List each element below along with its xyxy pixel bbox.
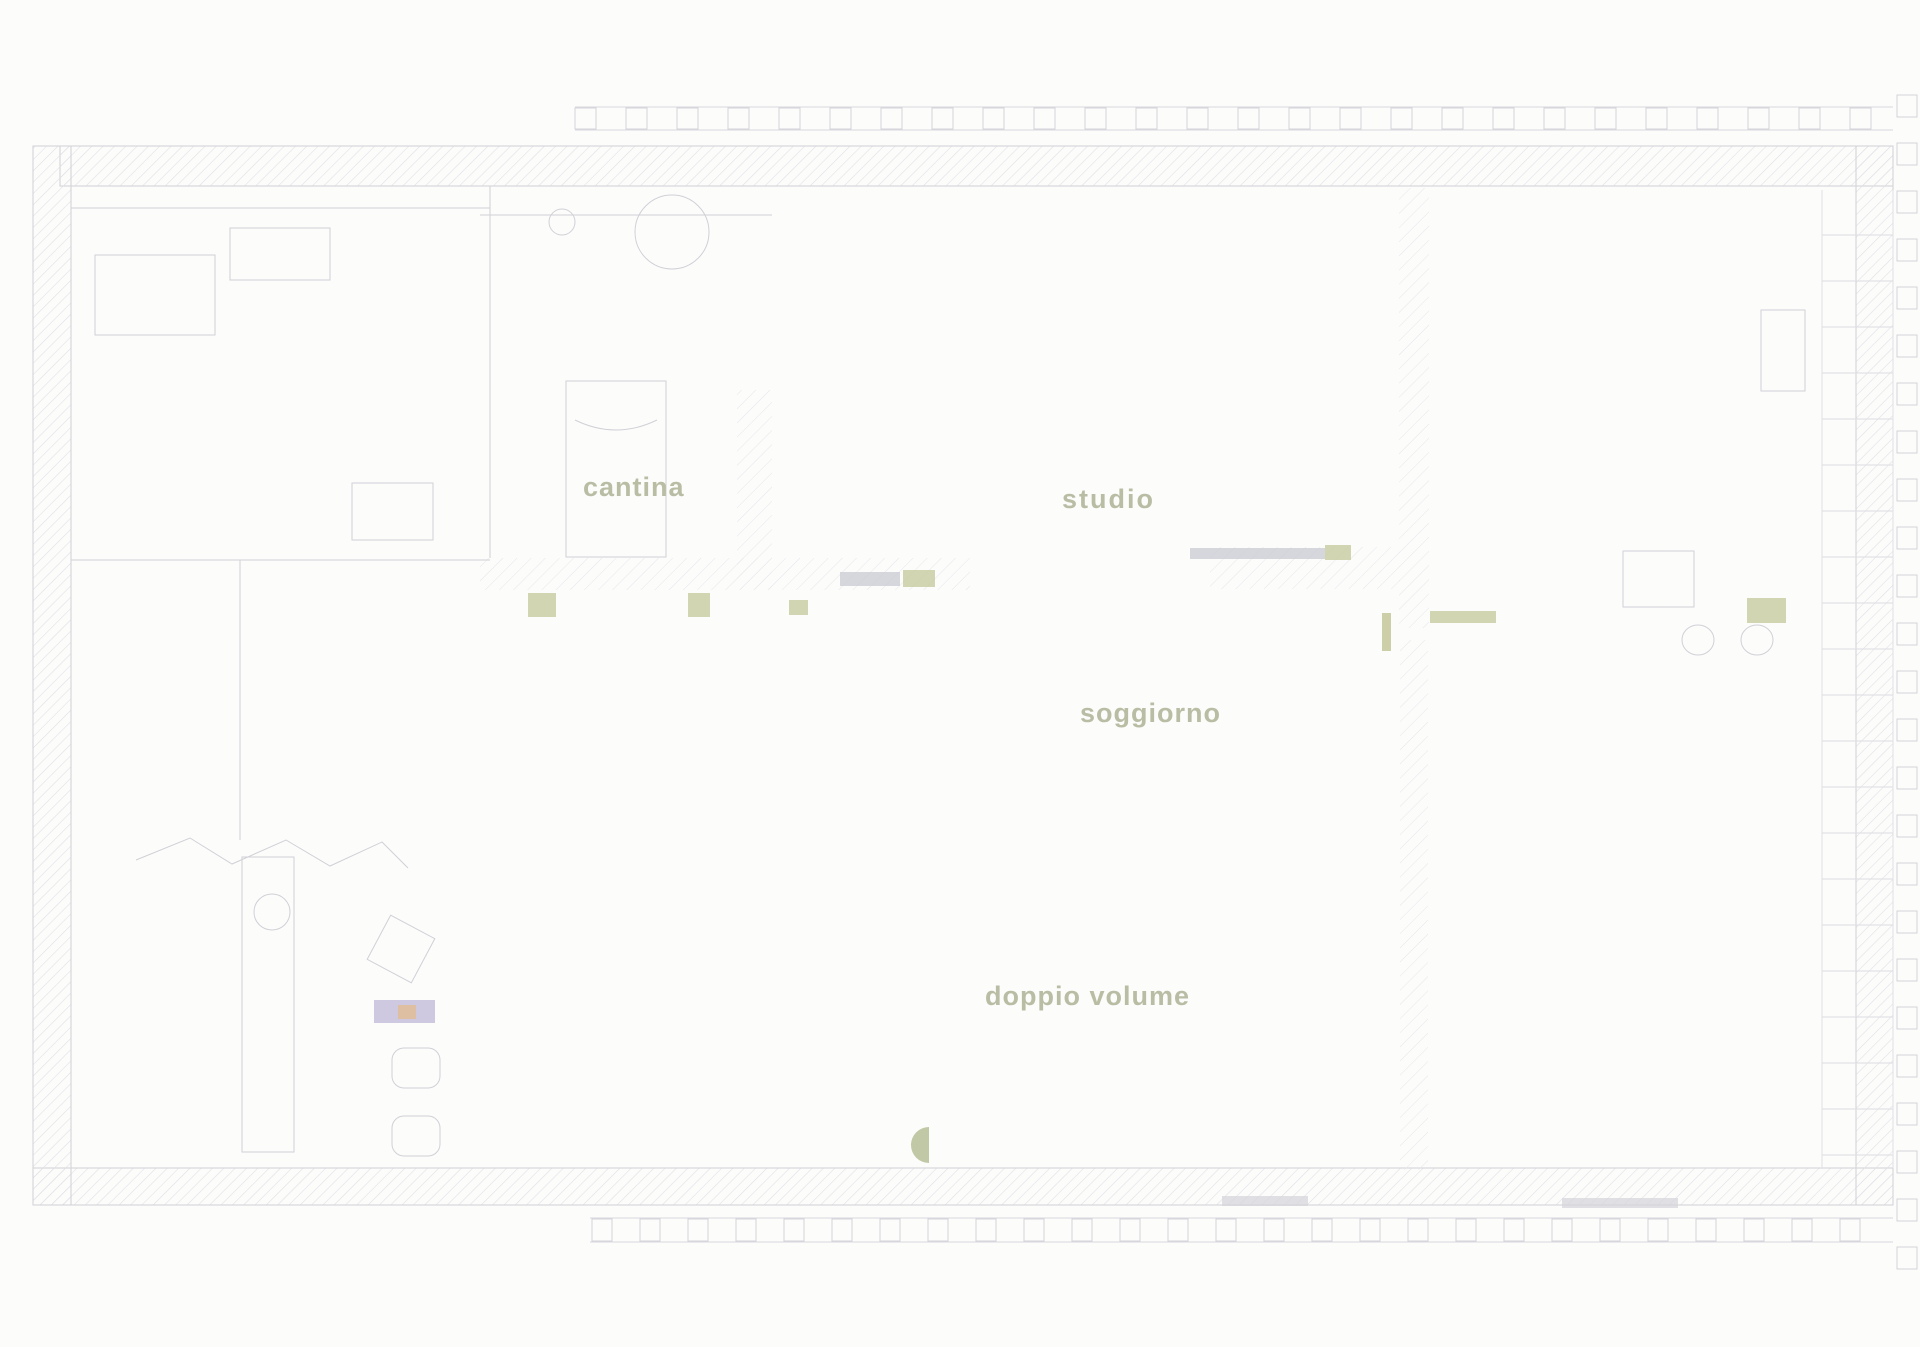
svg-text:soggiorno: soggiorno: [1080, 698, 1221, 728]
svg-text:cantina: cantina: [583, 472, 685, 502]
svg-text:studio: studio: [1062, 484, 1155, 514]
svg-text:doppio volume: doppio volume: [985, 981, 1190, 1011]
